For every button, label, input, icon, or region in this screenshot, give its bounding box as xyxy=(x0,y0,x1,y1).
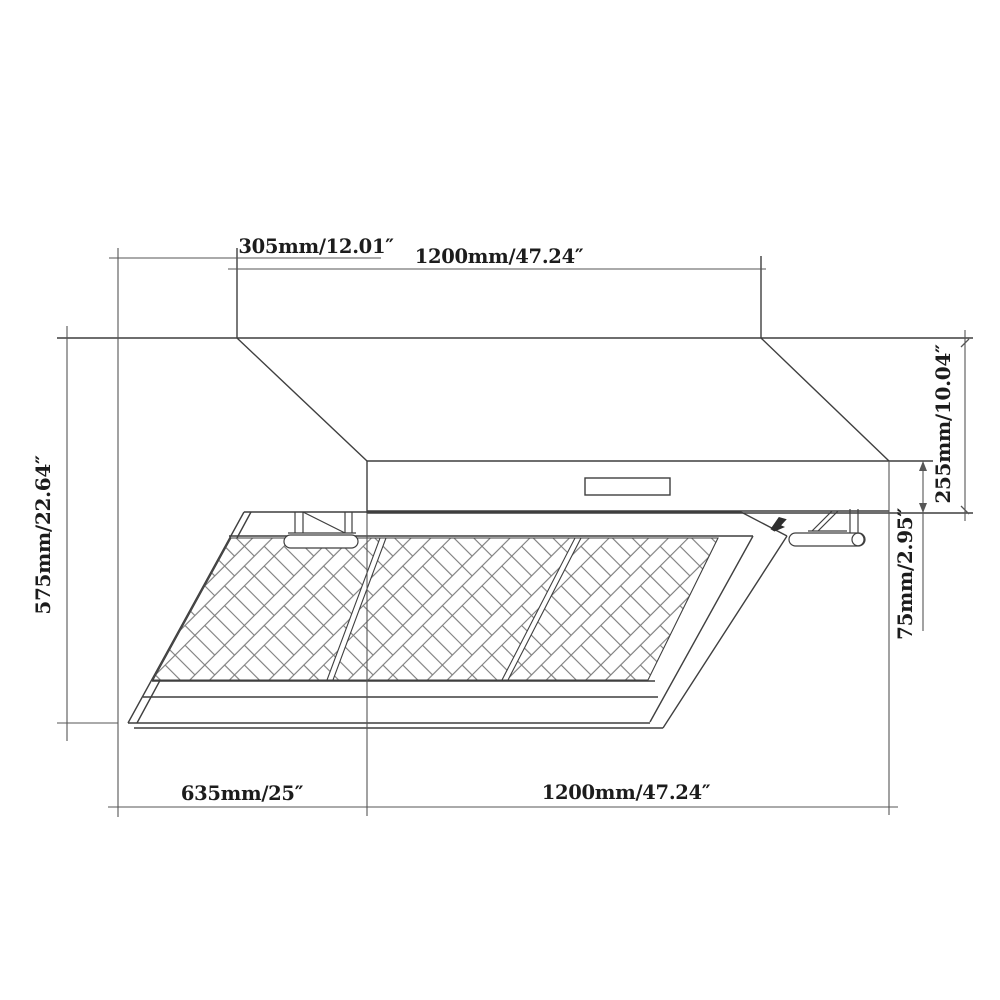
range-hood-dimension-drawing: 305mm/12.01″ 1200mm/47.24″ 575mm/22.64″ … xyxy=(0,0,1000,1000)
label-chimney-depth: 305mm/12.01″ xyxy=(238,235,394,258)
hood-linework xyxy=(57,248,973,728)
left-bracket xyxy=(284,512,358,548)
dim-total-height xyxy=(57,326,118,741)
dimension-labels: 305mm/12.01″ 1200mm/47.24″ 575mm/22.64″ … xyxy=(31,235,955,805)
label-bottom-depth: 635mm/25″ xyxy=(181,782,304,805)
label-hood-height: 255mm/10.04″ xyxy=(931,344,955,504)
right-bracket xyxy=(789,509,865,546)
control-panel xyxy=(585,478,670,495)
drawing-canvas: 305mm/12.01″ 1200mm/47.24″ 575mm/22.64″ … xyxy=(0,0,1000,1000)
label-body-height: 75mm/2.95″ xyxy=(893,508,917,640)
label-total-height: 575mm/22.64″ xyxy=(31,455,55,615)
baffle-filters xyxy=(110,515,790,705)
label-bottom-width: 1200mm/47.24″ xyxy=(542,781,711,804)
latch-icon xyxy=(771,518,786,532)
canopy xyxy=(237,338,889,461)
left-rod xyxy=(284,535,358,548)
dim-body-height xyxy=(919,461,927,631)
label-top-width: 1200mm/47.24″ xyxy=(415,245,584,268)
dim-hood-height xyxy=(961,330,969,521)
